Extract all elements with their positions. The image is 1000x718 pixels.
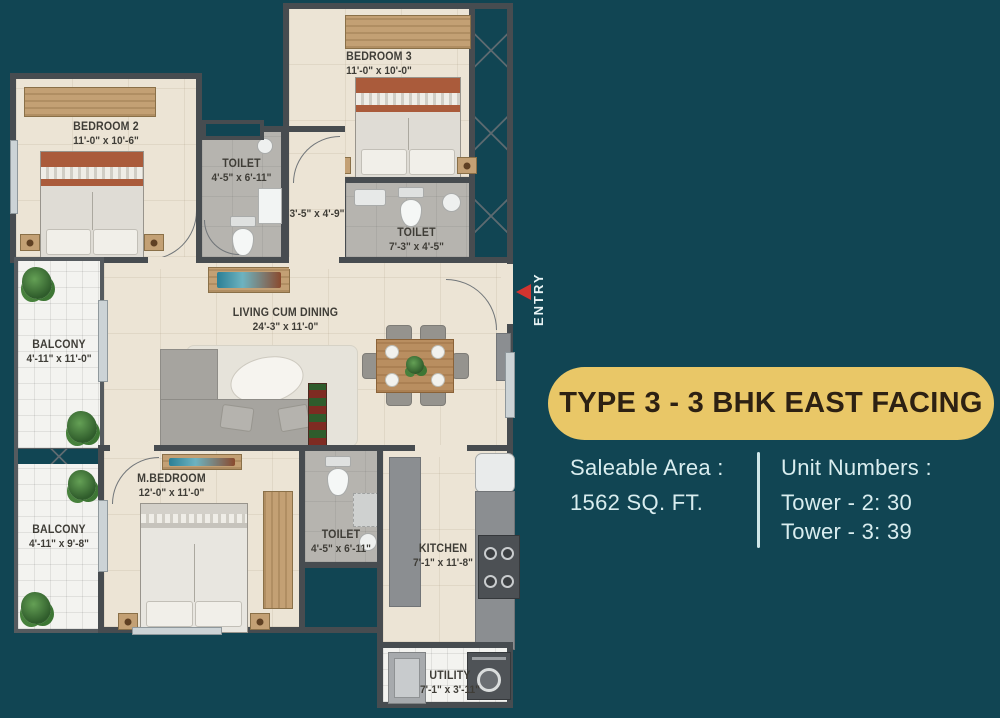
bed-blanket — [141, 523, 247, 528]
bed-pillow — [46, 229, 91, 255]
room-toilet-3: TOILET 4'-5" x 6'-11" — [299, 445, 383, 568]
tv-console — [208, 267, 290, 293]
sofa — [160, 399, 324, 451]
room-dims: 3'-5" x 4'-9" — [286, 208, 349, 221]
entry-arrow-icon — [516, 284, 531, 300]
balcony-plant — [67, 411, 97, 443]
room-toilet-2: TOILET 7'-3" x 4'-5" — [340, 177, 475, 263]
floor-plan-scene: BEDROOM 3 11'-0" x 10'-0" TOILET 7'-3" x… — [0, 0, 1000, 718]
window — [132, 627, 222, 635]
entry-door-arc — [446, 279, 497, 330]
kitchen-counter — [389, 457, 421, 607]
wall-art — [162, 454, 242, 470]
room-dims: 11'-0" x 10'-0" — [296, 65, 462, 78]
nightstand — [250, 613, 270, 630]
plant-stand — [308, 383, 327, 447]
bed-sheet — [356, 93, 460, 105]
window — [505, 352, 515, 418]
unit-numbers-label: Unit Numbers : — [781, 455, 932, 481]
stove — [478, 535, 520, 599]
wc-bowl — [400, 199, 422, 227]
room-label: TOILET 4'-5" x 6'-11" — [201, 158, 281, 185]
wash-basin — [442, 193, 461, 212]
service-shaft — [469, 3, 513, 263]
room-dims: 4'-11" x 11'-0" — [18, 353, 101, 366]
bed-fold — [408, 118, 409, 150]
shower-area — [353, 493, 379, 527]
bed-pillow — [93, 229, 138, 255]
room-dims: 4'-11" x 9'-8" — [18, 538, 101, 551]
wardrobe — [345, 15, 471, 49]
door-arc — [112, 457, 159, 504]
shower-head — [257, 138, 273, 154]
room-label: BEDROOM 3 11'-0" x 10'-0" — [296, 51, 462, 78]
door-opening — [415, 445, 467, 457]
balcony-plant — [21, 592, 51, 624]
bed-blanket — [41, 152, 143, 167]
room-label: LIVING CUM DINING 24'-3" x 11'-0" — [169, 307, 402, 334]
type-title: TYPE 3 - 3 BHK EAST FACING — [559, 387, 983, 420]
burner — [501, 547, 514, 560]
dining-chair — [452, 353, 469, 379]
bed-blanket — [356, 105, 460, 112]
bed-fold — [194, 544, 195, 602]
bed-blanket — [356, 78, 460, 93]
table-plant — [406, 356, 424, 374]
plate — [385, 373, 399, 387]
nightstand — [457, 157, 477, 174]
door-arc — [293, 136, 340, 183]
bed-pillow — [361, 149, 407, 175]
room-name: LIVING CUM DINING — [169, 307, 402, 321]
bathroom-sink — [354, 189, 386, 206]
burner — [501, 575, 514, 588]
room-name: BALCONY — [18, 339, 101, 353]
panel-divider — [757, 452, 760, 548]
bed-fold — [92, 192, 93, 230]
bed — [40, 151, 144, 261]
balcony-plant — [22, 267, 52, 299]
room-utility: UTILITY 7'-1" x 3'-11" — [377, 642, 513, 708]
bed-pillow — [146, 601, 193, 627]
unit-tower-2: Tower - 2: 30 — [781, 490, 912, 516]
bed-headboard — [141, 504, 247, 514]
nightstand — [20, 234, 40, 251]
entry-door-opening — [501, 264, 513, 324]
washing-machine — [467, 652, 511, 700]
passage: 3'-5" x 4'-9" — [283, 126, 345, 266]
room-toilet-1: TOILET 4'-5" x 6'-11" — [196, 126, 287, 263]
wardrobe — [263, 491, 293, 609]
dining-table — [376, 339, 454, 393]
bed — [140, 503, 248, 633]
room-name: BEDROOM 3 — [296, 51, 462, 65]
console-decor — [217, 272, 281, 288]
toilet-wc — [325, 456, 351, 498]
door-arc — [204, 220, 239, 255]
bed-pillow — [195, 601, 242, 627]
room-dims: 11'-0" x 10'-6" — [23, 135, 189, 148]
type-title-pill: TYPE 3 - 3 BHK EAST FACING — [548, 367, 994, 440]
room-kitchen: KITCHEN 7'-1" x 11'-8" — [377, 445, 513, 648]
art-decor — [169, 458, 235, 466]
room-name: BEDROOM 2 — [23, 121, 189, 135]
saleable-area-value: 1562 SQ. FT. — [570, 490, 703, 516]
wc-tank — [398, 187, 424, 198]
wash-basin — [359, 533, 377, 551]
door-opening — [110, 445, 154, 457]
fridge — [475, 453, 515, 493]
toilet-wc — [398, 187, 424, 231]
door-opening — [148, 257, 196, 269]
plate — [431, 373, 445, 387]
room-label: BALCONY 4'-11" x 9'-8" — [18, 524, 101, 551]
saleable-area-label: Saleable Area : — [570, 455, 724, 481]
unit-tower-3: Tower - 3: 39 — [781, 519, 912, 545]
room-name: BALCONY — [18, 524, 101, 538]
room-bedroom-2: BEDROOM 2 11'-0" x 10'-6" — [10, 73, 202, 263]
room-dims: 24'-3" x 11'-0" — [169, 321, 402, 334]
room-name: TOILET — [201, 158, 281, 172]
room-label: BEDROOM 2 11'-0" x 10'-6" — [23, 121, 189, 148]
bed-sheet — [41, 167, 143, 179]
plate — [431, 345, 445, 359]
bed-pillow — [409, 149, 455, 175]
entry-label: ENTRY — [531, 262, 546, 326]
room-dims: 4'-5" x 6'-11" — [201, 172, 281, 185]
door-opening — [289, 257, 339, 269]
plate — [385, 345, 399, 359]
bed-sheet — [141, 514, 247, 523]
wc-bowl — [327, 468, 349, 496]
window — [10, 140, 18, 214]
room-balcony-2: BALCONY 4'-11" x 9'-8" — [14, 448, 104, 633]
door-arc — [148, 211, 197, 260]
burner — [484, 575, 497, 588]
window — [98, 500, 108, 572]
room-master-bedroom: M.BEDROOM 12'-0" x 11'-0" — [98, 445, 305, 633]
bathroom-cabinet — [258, 188, 282, 224]
room-dims: 7'-3" x 4'-5" — [370, 241, 463, 254]
room-label: BALCONY 4'-11" x 11'-0" — [18, 339, 101, 366]
sofa-cushion — [219, 404, 254, 432]
utility-sink — [388, 652, 426, 704]
window — [98, 300, 108, 382]
balcony-plant — [68, 470, 96, 500]
duct — [202, 120, 264, 140]
sofa-cushion — [277, 404, 311, 433]
bed-blanket — [41, 179, 143, 186]
wc-tank — [325, 456, 351, 467]
bed — [355, 77, 461, 181]
void-duct — [299, 568, 383, 633]
balcony-divider — [18, 449, 100, 464]
room-balcony-1: BALCONY 4'-11" x 11'-0" — [14, 257, 104, 452]
burner — [484, 547, 497, 560]
room-living-dining: LIVING CUM DINING 24'-3" x 11'-0" — [98, 257, 513, 452]
wardrobe — [24, 87, 156, 117]
room-label: 3'-5" x 4'-9" — [286, 208, 349, 221]
